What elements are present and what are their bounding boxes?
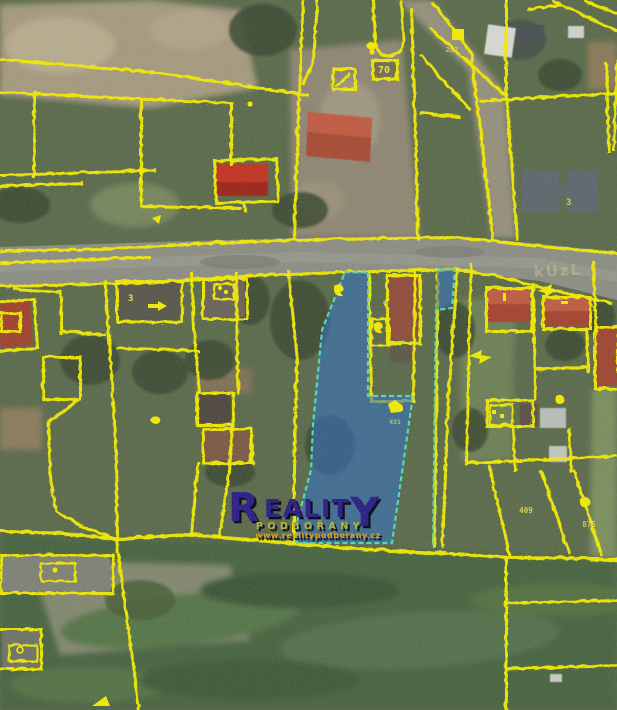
map-canvas: 70 287 3 3 409 875 431 kÚzL R EALIT Y PO… <box>0 0 617 710</box>
cadastral-map-screenshot: 70 287 3 3 409 875 431 kÚzL R EALIT Y PO… <box>0 0 617 710</box>
photo-grain-overlay <box>0 0 617 710</box>
